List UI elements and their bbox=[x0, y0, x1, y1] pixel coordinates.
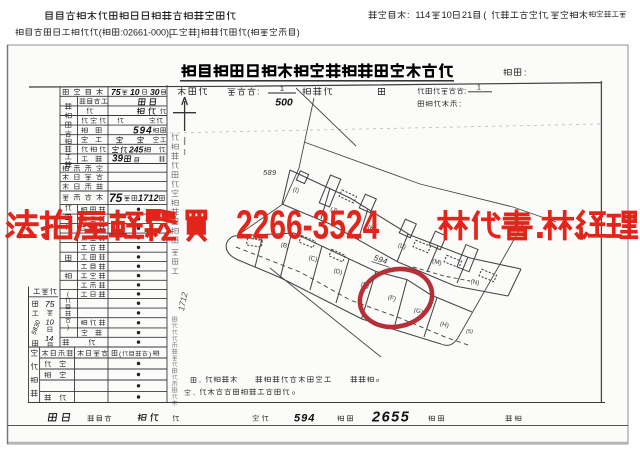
svg-text:o: o bbox=[376, 378, 379, 384]
svg-text::: : bbox=[257, 87, 260, 97]
svg-text:): ) bbox=[149, 351, 151, 358]
svg-text:): ) bbox=[297, 28, 300, 38]
svg-text::: : bbox=[407, 10, 410, 20]
svg-text:o: o bbox=[292, 391, 295, 397]
svg-text:114: 114 bbox=[415, 10, 430, 20]
svg-text:(5): (5) bbox=[466, 329, 473, 335]
svg-text:(: ( bbox=[67, 292, 69, 298]
svg-text:39: 39 bbox=[112, 154, 123, 165]
svg-text:10: 10 bbox=[46, 318, 55, 327]
svg-text:,: , bbox=[193, 390, 195, 397]
svg-text:594: 594 bbox=[294, 413, 315, 425]
svg-text:75: 75 bbox=[109, 191, 123, 205]
svg-text:,: , bbox=[199, 377, 201, 384]
svg-text:30: 30 bbox=[150, 87, 160, 97]
svg-text:14: 14 bbox=[45, 334, 53, 343]
svg-text:75: 75 bbox=[111, 87, 121, 97]
svg-text:589: 589 bbox=[263, 168, 277, 177]
svg-text:2266-3524: 2266-3524 bbox=[236, 202, 379, 247]
svg-text:594: 594 bbox=[133, 125, 153, 136]
svg-text:21: 21 bbox=[462, 10, 472, 20]
svg-text::: : bbox=[459, 100, 461, 109]
svg-text:,: , bbox=[547, 10, 550, 20]
svg-text:): ) bbox=[67, 325, 69, 331]
svg-text:75: 75 bbox=[45, 299, 55, 309]
svg-text::: : bbox=[524, 68, 527, 78]
svg-text:(: ( bbox=[99, 28, 102, 38]
svg-text:500: 500 bbox=[275, 97, 293, 109]
svg-text:.: . bbox=[534, 203, 545, 247]
svg-text:]: ] bbox=[197, 28, 200, 38]
svg-text:245: 245 bbox=[128, 145, 144, 155]
svg-text::02661-000)[: :02661-000)[ bbox=[121, 28, 173, 38]
svg-text:1712: 1712 bbox=[138, 193, 159, 203]
svg-text:1: 1 bbox=[280, 84, 284, 93]
svg-text:(: ( bbox=[247, 28, 250, 38]
svg-text:2655: 2655 bbox=[371, 410, 410, 426]
svg-text:10: 10 bbox=[441, 10, 451, 20]
svg-text:1: 1 bbox=[477, 85, 481, 92]
svg-text::: : bbox=[464, 87, 466, 96]
svg-text:10: 10 bbox=[130, 87, 140, 97]
